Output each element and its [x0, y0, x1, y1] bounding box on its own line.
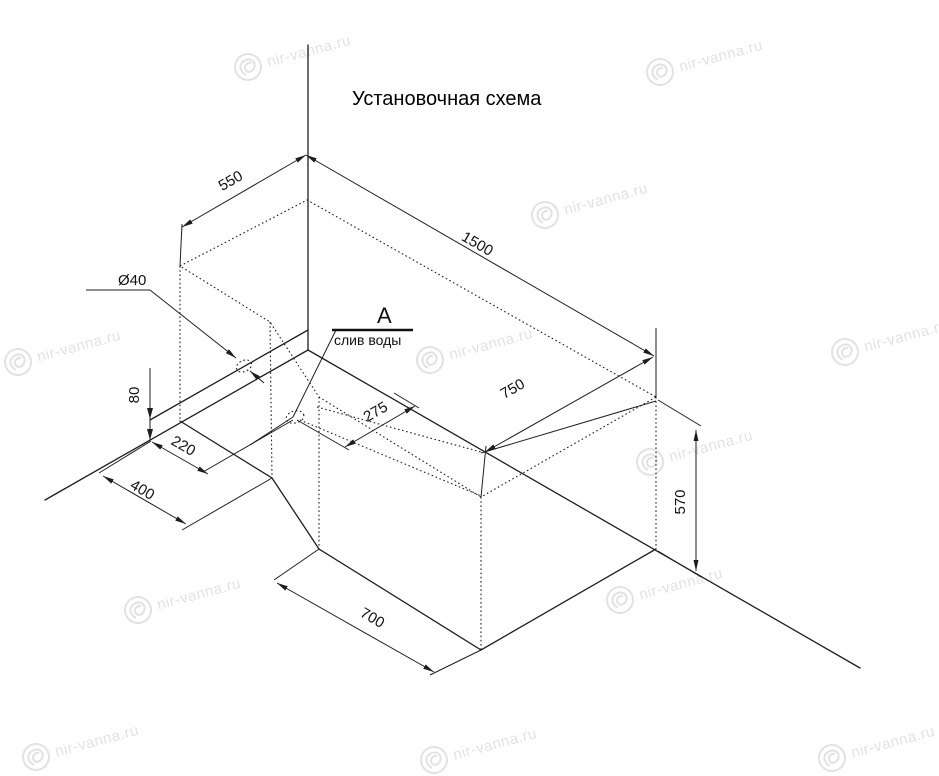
drain-water-label: слив воды — [334, 332, 401, 348]
dim-550-label: 550 — [216, 167, 246, 194]
watermark-swirl-icon — [641, 453, 659, 471]
left-floor-line — [45, 350, 308, 500]
watermark-text: nir-vanna.ru — [447, 325, 535, 364]
watermark-text: nir-vanna.ru — [677, 37, 765, 76]
dim-diameter-label: Ø40 — [118, 272, 146, 289]
watermark-logo-icon — [122, 594, 154, 626]
watermark-logo-icon — [2, 346, 34, 378]
dim-570-label: 570 — [672, 489, 689, 514]
rim-back-edges — [180, 200, 656, 397]
dim-80-label: 80 — [126, 387, 143, 404]
watermark-logo-icon — [634, 446, 666, 478]
drain-holes — [234, 358, 305, 425]
watermark-swirl-icon — [611, 591, 629, 609]
dimension-570: 570 — [658, 400, 701, 577]
floor-front-edges — [180, 421, 656, 650]
inner-bowl-front-edge — [300, 420, 481, 496]
watermark-logo-icon — [418, 744, 450, 776]
watermark-text: nir-vanna.ru — [637, 565, 725, 604]
watermark: nir-vanna.ru — [2, 322, 124, 378]
dimension-80: 80 — [126, 368, 153, 440]
dimension-700: 700 — [274, 549, 481, 675]
watermark-text: nir-vanna.ru — [155, 575, 243, 614]
watermark-swirl-icon — [823, 749, 841, 767]
edge-front-left — [270, 322, 272, 478]
tub-rim-outline — [180, 200, 656, 650]
dim-750-label: 750 — [498, 375, 528, 402]
watermark-logo-icon — [604, 584, 636, 616]
watermark-logo-icon — [829, 336, 861, 368]
watermark: nir-vanna.ru — [122, 570, 244, 626]
bowl-top-visible-edge — [481, 401, 656, 453]
watermark-logo-icon — [644, 56, 676, 88]
dimension-550: 550 — [180, 155, 306, 266]
tub-base-edges — [150, 330, 656, 650]
watermark-swirl-icon — [425, 751, 443, 769]
watermark: nir-vanna.ru — [414, 320, 536, 376]
watermark-text: nir-vanna.ru — [53, 722, 141, 761]
watermark-logo-icon — [20, 741, 52, 773]
dim-400-label: 400 — [127, 476, 157, 503]
dim-700-label: 700 — [357, 604, 387, 631]
callout-drain-view: A слив воды — [250, 303, 413, 445]
watermark: nir-vanna.ru — [418, 720, 540, 776]
watermark-text: nir-vanna.ru — [562, 180, 650, 219]
watermark: nir-vanna.ru — [634, 422, 756, 478]
installation-scheme-page: nir-vanna.runir-vanna.runir-vanna.runir-… — [0, 0, 939, 776]
watermark: nir-vanna.ru — [232, 27, 354, 83]
watermark-text: nir-vanna.ru — [35, 327, 123, 366]
dim-220-label: 220 — [168, 432, 198, 459]
rim-front-edges — [180, 266, 656, 497]
watermark: nir-vanna.ru — [20, 717, 142, 773]
dim-275-label: 275 — [361, 398, 391, 425]
watermark-swirl-icon — [9, 353, 27, 371]
watermark-text: nir-vanna.ru — [849, 723, 937, 762]
watermark-swirl-icon — [651, 63, 669, 81]
watermark-swirl-icon — [536, 206, 554, 224]
watermark-text: nir-vanna.ru — [667, 427, 755, 466]
watermark-swirl-icon — [27, 748, 45, 766]
installation-scheme-drawing: nir-vanna.runir-vanna.runir-vanna.runir-… — [0, 0, 939, 776]
watermark-logo-icon — [232, 51, 264, 83]
watermark-text: nir-vanna.ru — [862, 317, 939, 356]
dim-1500-label: 1500 — [459, 228, 496, 259]
watermark: nir-vanna.ru — [829, 312, 939, 368]
watermark-text: nir-vanna.ru — [451, 725, 539, 764]
watermark-swirl-icon — [239, 58, 257, 76]
watermark-logo-icon — [816, 742, 848, 774]
view-a-label: A — [377, 303, 392, 328]
watermark-swirl-icon — [129, 601, 147, 619]
watermark: nir-vanna.ru — [816, 718, 938, 774]
apron-bottom-line — [150, 330, 308, 420]
page-title: Установочная схема — [352, 88, 542, 110]
watermark-swirl-icon — [836, 343, 854, 361]
watermark-logo-icon — [529, 199, 561, 231]
right-floor-line — [308, 350, 860, 668]
watermark-text: nir-vanna.ru — [265, 32, 353, 71]
watermark: nir-vanna.ru — [644, 32, 766, 88]
watermark-logo-icon — [414, 344, 446, 376]
watermark-swirl-icon — [421, 351, 439, 369]
watermark: nir-vanna.ru — [529, 175, 651, 231]
